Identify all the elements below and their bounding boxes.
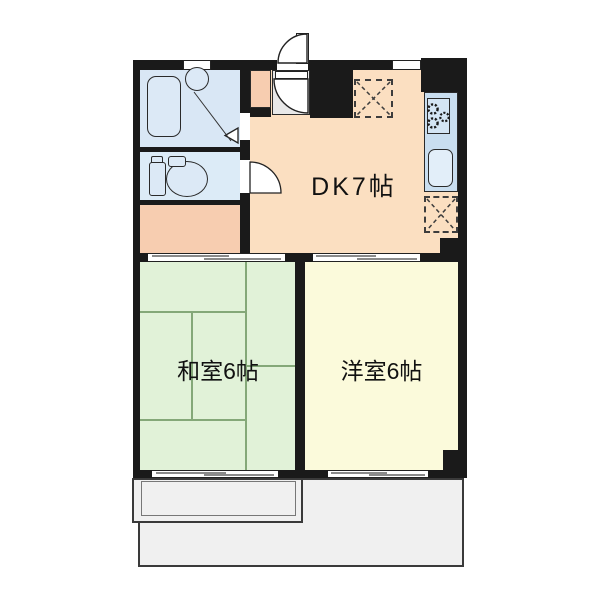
pillar-youshitsu-corner — [443, 450, 467, 478]
kitchen-window — [392, 60, 421, 70]
wall-toilet-hall — [133, 200, 250, 205]
washitsu-label: 和室6帖 — [140, 352, 296, 386]
dk-label: DK7帖 — [250, 167, 458, 203]
washitsu-balcony-window — [152, 470, 278, 478]
washbasin-icon — [185, 67, 209, 91]
toilet-door-gap — [240, 160, 250, 193]
pillar-dk-youshitsu — [440, 238, 467, 262]
wall-left — [133, 60, 140, 478]
sliding-door-washitsu — [148, 253, 285, 262]
balcony-inner-line — [141, 481, 296, 516]
wall-mid-b — [285, 253, 313, 262]
entry-door-leaf — [296, 33, 309, 64]
wall-bath-toilet — [133, 147, 250, 152]
wall-mid-a — [133, 253, 148, 262]
wall-washitsu-youshitsu — [295, 262, 305, 470]
entry-inner-door-leaf — [275, 71, 308, 79]
wall-column-dk-c — [240, 193, 250, 253]
wall-column-dk-a — [240, 60, 250, 113]
tatami-line — [140, 311, 246, 313]
toilet-tank-icon — [149, 162, 166, 196]
gas-stove-icon — [427, 98, 450, 134]
youshitsu-balcony-window — [328, 470, 428, 478]
wall-under-closet — [250, 108, 271, 117]
wall-right — [458, 58, 467, 478]
floor-plan: DK7帖 和室6帖 洋室6帖 — [0, 0, 600, 600]
youshitsu-label: 洋室6帖 — [305, 352, 458, 386]
entry-closet — [250, 70, 271, 108]
wall-bottom-a — [133, 470, 152, 478]
sliding-door-youshitsu — [313, 253, 420, 262]
wall-bottom-b — [278, 470, 328, 478]
bathroom-door-gap — [240, 113, 250, 140]
bathtub-icon — [147, 76, 181, 137]
wall-column-dk-b — [240, 140, 250, 160]
toilet-seat-icon — [168, 156, 186, 167]
wall-entry-block — [310, 60, 353, 118]
refrigerator-space-icon — [354, 79, 393, 118]
room-hallway — [140, 205, 240, 253]
tatami-line — [140, 419, 246, 421]
